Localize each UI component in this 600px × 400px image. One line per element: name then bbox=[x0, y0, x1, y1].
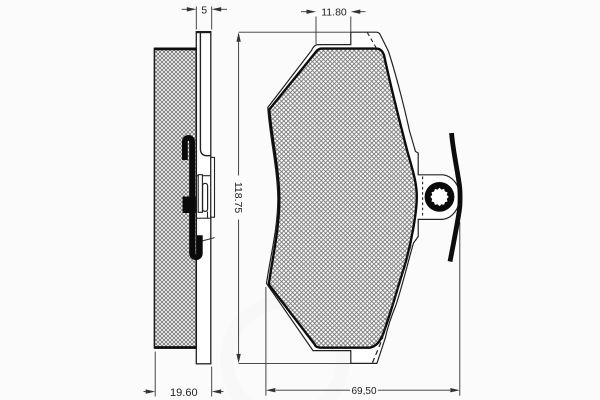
svg-text:118.75: 118.75 bbox=[232, 182, 244, 213]
svg-text:5: 5 bbox=[201, 5, 207, 17]
svg-text:69,50: 69,50 bbox=[351, 386, 376, 397]
svg-text:19.60: 19.60 bbox=[170, 387, 198, 399]
svg-text:11.80: 11.80 bbox=[321, 7, 347, 19]
